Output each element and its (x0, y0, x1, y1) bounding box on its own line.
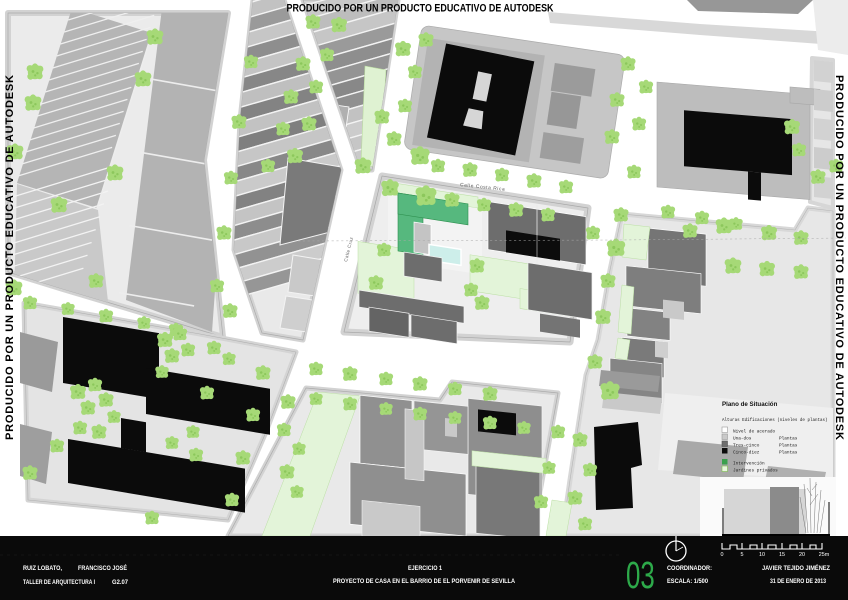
svg-text:COORDINADOR:: COORDINADOR: (667, 565, 712, 572)
svg-text:TALLER DE ARQUITECTURA I: TALLER DE ARQUITECTURA I (23, 580, 95, 586)
svg-text:PRODUCIDO POR UN PRODUCTO EDUC: PRODUCIDO POR UN PRODUCTO EDUCATIVO DE A… (833, 75, 845, 440)
svg-text:Plano de Situación: Plano de Situación (722, 401, 778, 408)
svg-text:Intervención: Intervención (733, 462, 765, 467)
svg-text:G2.07: G2.07 (112, 580, 129, 586)
svg-text:RUIZ LOBATO,: RUIZ LOBATO, (23, 565, 62, 572)
svg-text:JAVIER TEJIDO JIMÉNEZ: JAVIER TEJIDO JIMÉNEZ (762, 564, 830, 572)
svg-text:31 DE ENERO DE 2013: 31 DE ENERO DE 2013 (770, 579, 827, 585)
svg-text:PRODUCIDO POR UN PRODUCTO EDUC: PRODUCIDO POR UN PRODUCTO EDUCATIVO DE A… (4, 75, 16, 440)
svg-text:25m: 25m (819, 552, 830, 558)
svg-text:Cinco-diez: Cinco-diez (733, 451, 760, 456)
svg-text:10: 10 (759, 552, 765, 558)
svg-text:EJERCICIO 1: EJERCICIO 1 (408, 565, 442, 572)
svg-text:5: 5 (741, 552, 744, 558)
svg-text:Alturas Edificaciones (niveles: Alturas Edificaciones (niveles de planta… (722, 418, 828, 423)
svg-text:Plantas: Plantas (779, 437, 798, 442)
svg-text:03: 03 (626, 554, 655, 596)
svg-text:ESCALA: 1/500: ESCALA: 1/500 (667, 578, 709, 585)
svg-text:Una-dos: Una-dos (733, 437, 752, 442)
svg-text:20: 20 (799, 552, 805, 558)
svg-text:15: 15 (779, 552, 785, 558)
svg-text:Tres-cinco: Tres-cinco (733, 444, 760, 449)
svg-text:Nivel de acerado: Nivel de acerado (733, 430, 776, 435)
svg-text:Jardines privados: Jardines privados (733, 469, 778, 474)
svg-text:Plantas: Plantas (779, 451, 798, 456)
svg-text:0: 0 (721, 552, 724, 558)
svg-text:PROYECTO DE CASA EN EL BARRIO: PROYECTO DE CASA EN EL BARRIO DE EL PORV… (333, 578, 515, 585)
svg-text:PRODUCIDO POR UN PRODUCTO EDUC: PRODUCIDO POR UN PRODUCTO EDUCATIVO DE A… (287, 3, 554, 15)
svg-text:Plantas: Plantas (779, 444, 798, 449)
svg-text:FRANCISCO JOSÉ: FRANCISCO JOSÉ (78, 564, 127, 572)
